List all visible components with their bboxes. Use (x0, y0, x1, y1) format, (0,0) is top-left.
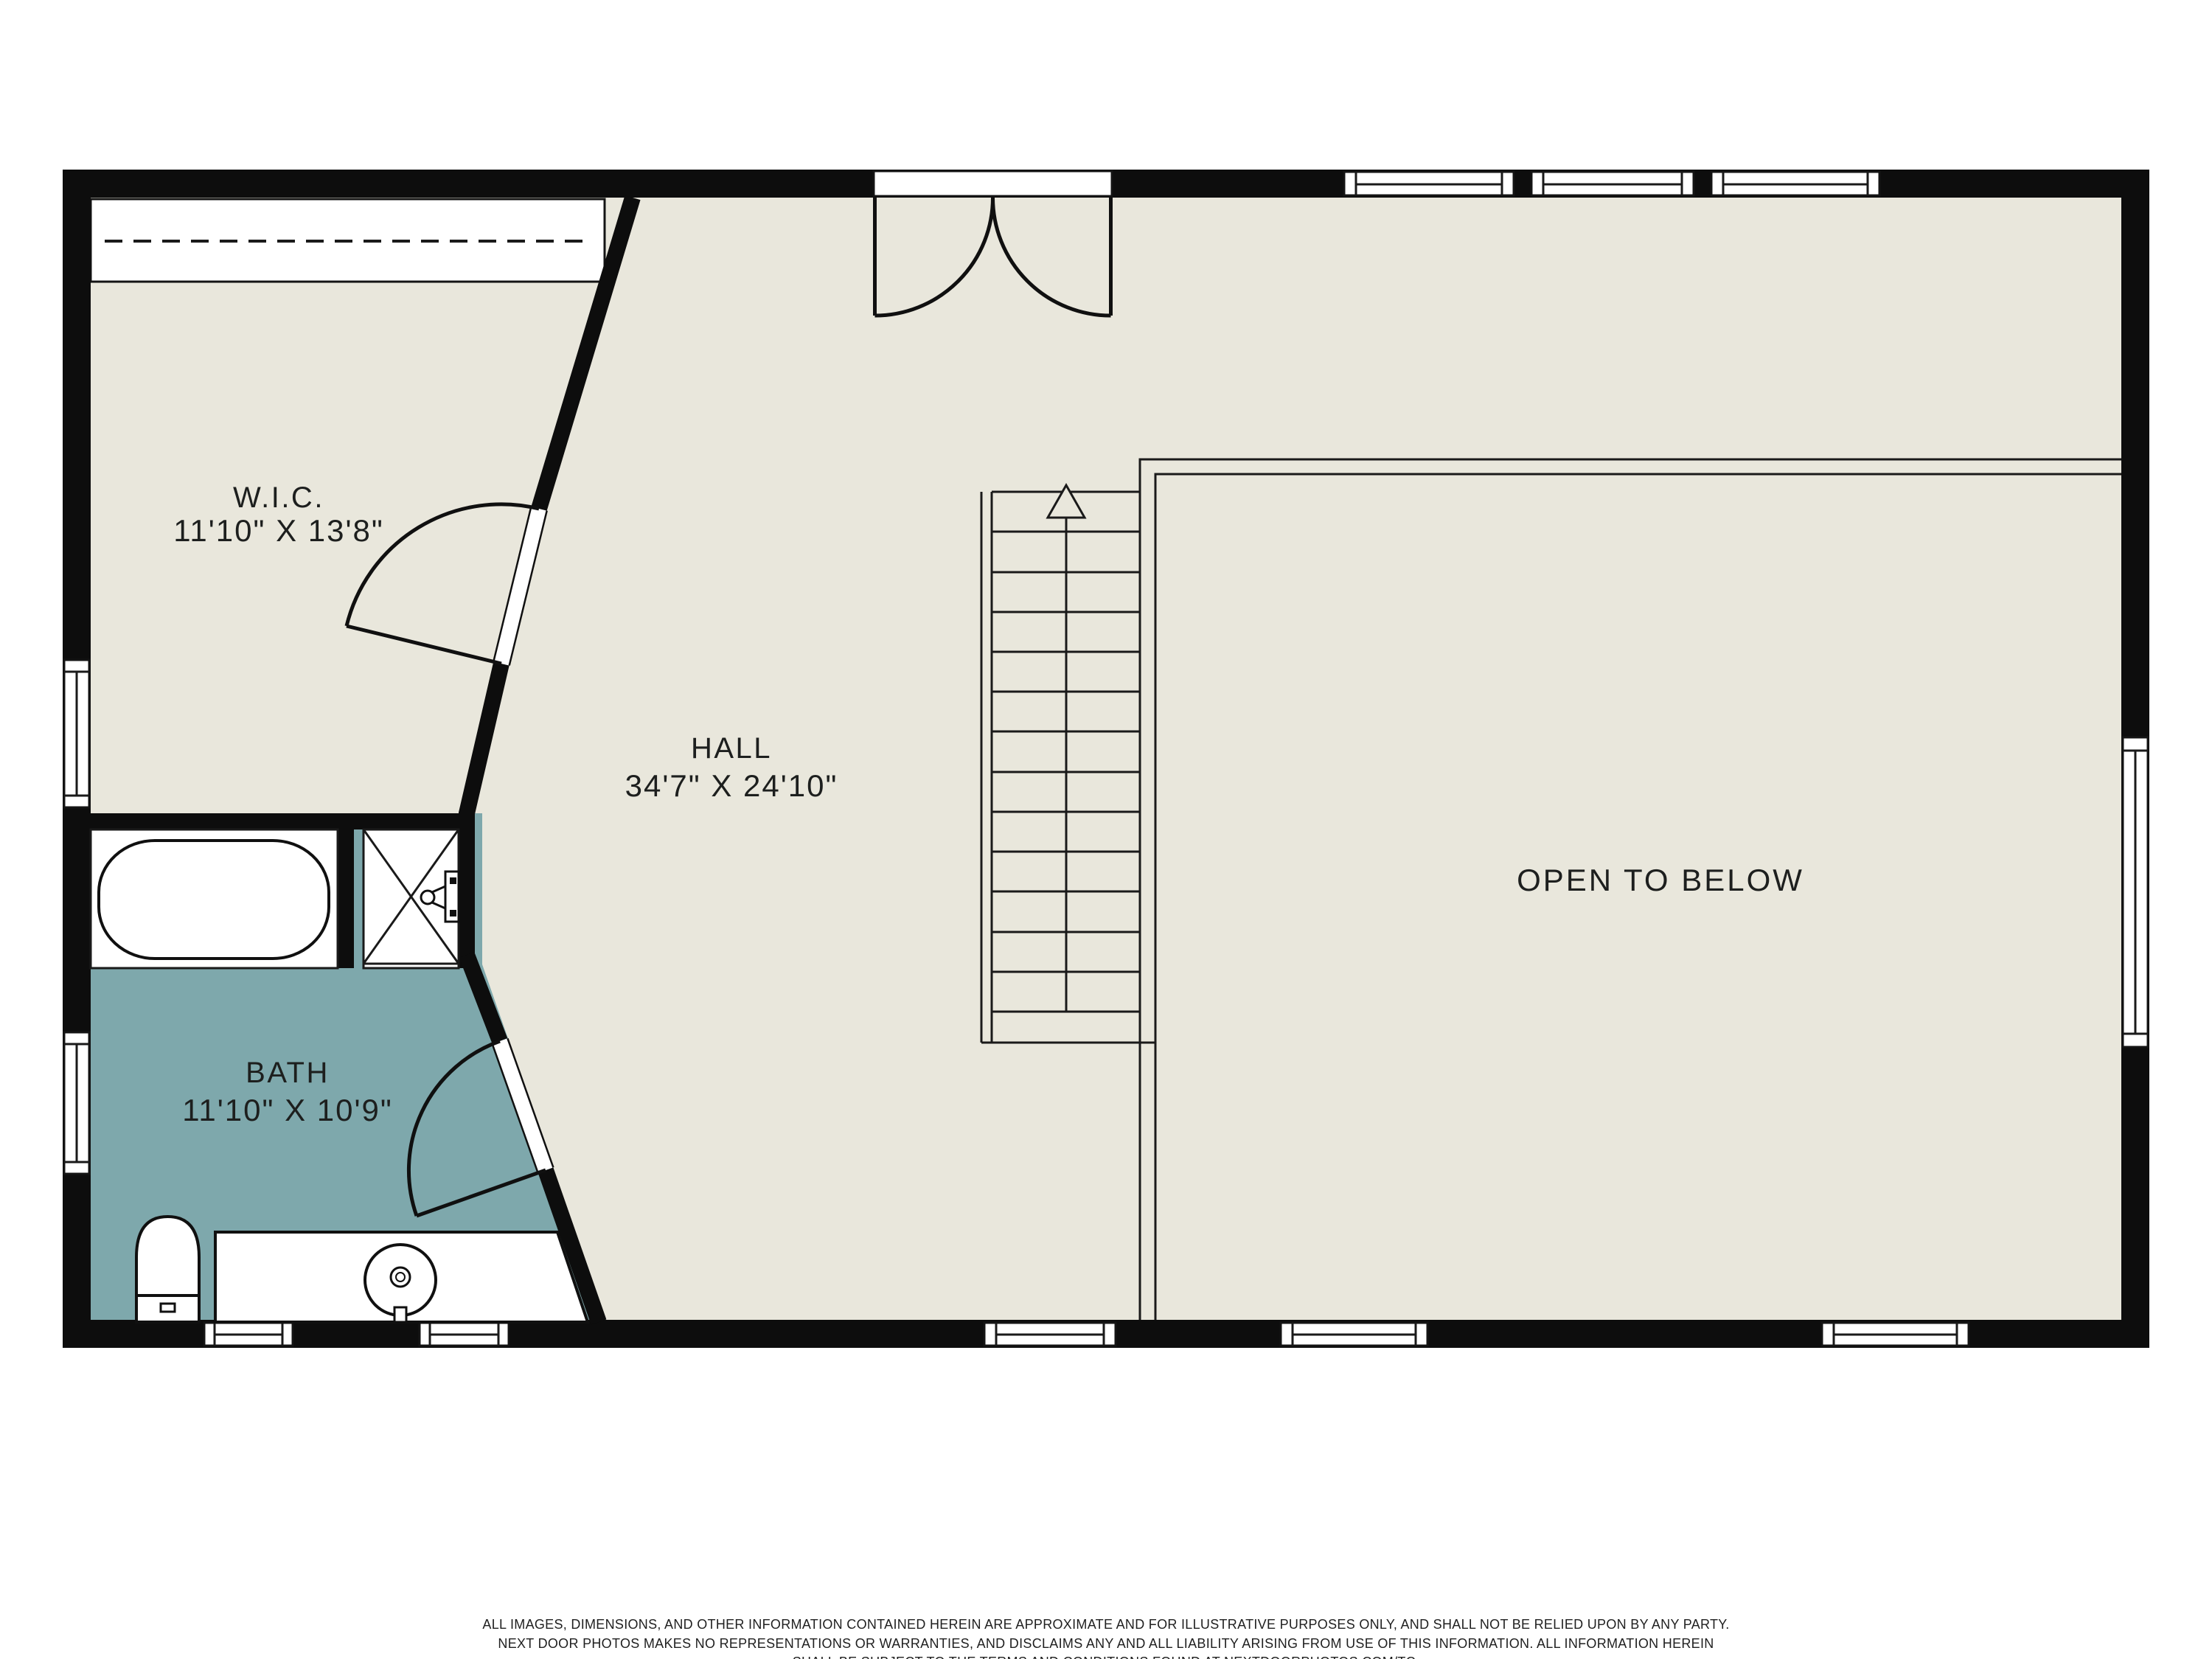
window (64, 1032, 89, 1174)
toilet-flush-button (161, 1304, 175, 1312)
bathtub-alcove (91, 829, 338, 968)
hall-room-name: HALL (691, 732, 772, 765)
faucet-icon (394, 1307, 406, 1322)
closet-rod (91, 199, 605, 282)
window (420, 1323, 509, 1346)
floor-plan: W.I.C. 11'10" X 13'8" HALL 34'7" X 24'10… (0, 0, 2212, 1659)
disclaimer-line-1: ALL IMAGES, DIMENSIONS, AND OTHER INFORM… (482, 1617, 1729, 1632)
wic-room-dimensions: 11'10" X 13'8" (173, 513, 384, 548)
disclaimer-line-3: SHALL BE SUBJECT TO THE TERMS AND CONDIT… (793, 1655, 1420, 1659)
hall-room-dimensions: 34'7" X 24'10" (625, 768, 838, 803)
toilet (136, 1217, 199, 1322)
disclaimer-line-2: NEXT DOOR PHOTOS MAKES NO REPRESENTATION… (498, 1636, 1714, 1651)
window (2123, 737, 2148, 1047)
window (1281, 1323, 1427, 1346)
window (1344, 172, 1514, 195)
window (1822, 1323, 1969, 1346)
window (984, 1323, 1116, 1346)
window (64, 660, 89, 807)
window (1531, 172, 1694, 195)
bath-room-dimensions: 11'10" X 10'9" (182, 1093, 393, 1127)
toilet-bowl (136, 1217, 199, 1295)
tub-shower-wall (338, 813, 354, 968)
bathtub (99, 841, 329, 959)
bath-room-name: BATH (246, 1057, 330, 1089)
window (204, 1323, 293, 1346)
window (1711, 172, 1879, 195)
wic-room-name: W.I.C. (233, 481, 324, 514)
disclaimer: ALL IMAGES, DIMENSIONS, AND OTHER INFORM… (482, 1617, 1729, 1659)
shower (364, 829, 459, 968)
vanity (215, 1232, 588, 1322)
open-to-below-label: OPEN TO BELOW (1517, 863, 1804, 897)
entry-door-opening (874, 171, 1112, 196)
wic-bath-divider-wall (63, 813, 474, 829)
